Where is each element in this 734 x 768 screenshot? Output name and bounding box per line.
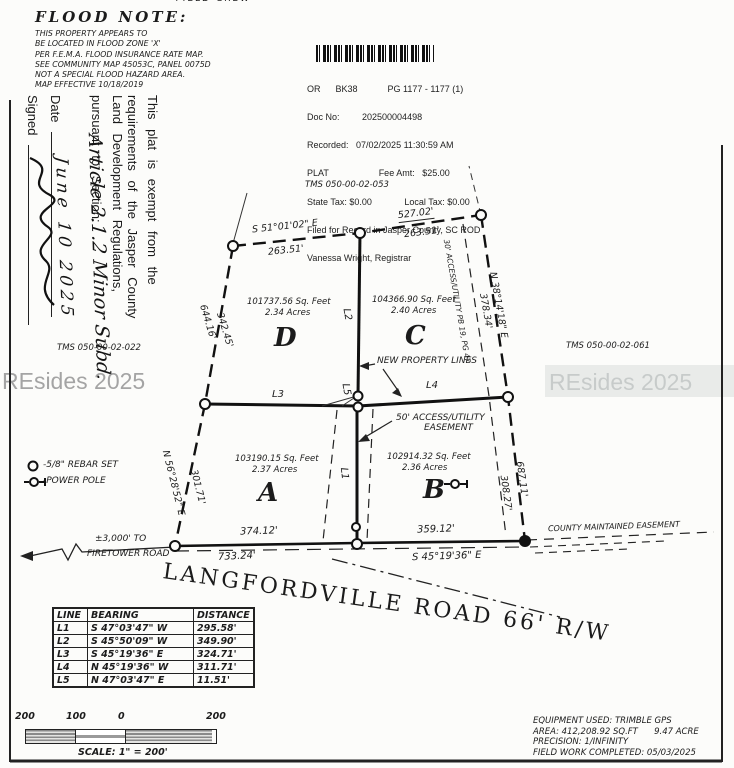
access-easement-note-line2: EASEMENT [424, 424, 473, 434]
legend-power-pole-label: -POWER POLE [43, 477, 106, 487]
line-table-row: L3S 45°19'36" E324.71' [53, 648, 254, 661]
parcel-d-acres: 2.34 Acres [265, 309, 310, 318]
parcel-a-acres: 2.37 Acres [252, 466, 297, 475]
label-l5: L5 [340, 383, 353, 397]
scale-bar-segment [126, 730, 212, 743]
line-table: LINE BEARING DISTANCE L1S 47°03'47" W295… [52, 607, 255, 688]
new-lines-arrow-west [359, 362, 369, 370]
legend-power-pole-icon [24, 478, 45, 486]
line-table-row: L5N 47°03'47" E11.51' [53, 674, 254, 688]
outer-boundary [175, 215, 525, 546]
firetower-note-line1: ±3,000' TO [95, 535, 146, 545]
parcel-b-sqft: 102914.32 Sq. Feet [387, 453, 471, 462]
precision: PRECISION: 1/INFINITY [533, 737, 699, 748]
equipment-used: EQUIPMENT USED: TRIMBLE GPS [533, 716, 699, 727]
parcel-c-sqft: 104366.90 Sq. Feet [372, 296, 456, 305]
parcel-b-acres: 2.36 Acres [402, 464, 447, 473]
line-table-header-row: LINE BEARING DISTANCE [53, 608, 254, 622]
survey-info: EQUIPMENT USED: TRIMBLE GPS AREA: 412,20… [533, 716, 699, 758]
firetower-arrow [20, 551, 33, 561]
power-pole-marker [519, 535, 531, 547]
scale-bar [25, 729, 217, 744]
parcel-d-label: D [274, 324, 297, 353]
scale-bar-segment [76, 730, 126, 743]
distance-bottom-total: 733.24' [218, 550, 256, 563]
parcel-d-sqft: 101737.56 Sq. Feet [247, 298, 331, 307]
line-table-row: L4N 45°19'36" W311.71' [53, 661, 254, 674]
line-table-row: L1S 47°03'47" W295.58' [53, 622, 254, 635]
label-l3: L3 [272, 389, 284, 400]
legend-rebar-icon [29, 462, 38, 471]
scale-caption: SCALE: 1" = 200' [78, 748, 168, 758]
plat-sheet: FIELD CREW FLOOD NOTE: THIS PROPERTY APP… [0, 0, 734, 768]
total-area: AREA: 412,208.92 SQ.FT 9.47 ACRE [533, 727, 699, 738]
legend-rebar-label: -5/8" REBAR SET [43, 461, 118, 471]
road-frontage [175, 541, 525, 546]
field-work-completed: FIELD WORK COMPLETED: 05/03/2025 [533, 748, 699, 759]
new-lines-arrow-south [392, 388, 402, 397]
label-l4: L4 [426, 380, 438, 391]
line-table-row: L2S 45°50'09" W349.90' [53, 635, 254, 648]
distance-bottom-right: 359.12' [417, 523, 455, 535]
parcel-c-label: C [405, 322, 426, 351]
parcel-b-label: B [423, 476, 445, 505]
scale-label-0: 0 [118, 711, 125, 722]
firetower-note-line2: FIRETOWER ROAD [87, 550, 169, 560]
power-pole-symbol-b [444, 480, 467, 488]
rebar-markers [170, 210, 513, 551]
parcel-c-acres: 2.40 Acres [391, 307, 436, 316]
line-l3 [205, 404, 358, 406]
new-property-lines-note: NEW PROPERTY LINES [377, 357, 477, 367]
scale-label-200-left: 200 [15, 711, 35, 722]
line-l2 [358, 233, 360, 396]
parcel-a-label: A [258, 479, 278, 508]
label-l2: L2 [341, 308, 354, 322]
line-l4 [358, 397, 508, 406]
scale-label-200-right: 200 [206, 711, 226, 722]
label-l1: L1 [338, 467, 350, 480]
scale-bar-segment [26, 730, 76, 743]
distance-bottom-left: 374.12' [240, 525, 278, 537]
parcel-a-sqft: 103190.15 Sq. Feet [235, 455, 319, 464]
scale-label-100: 100 [66, 711, 86, 722]
